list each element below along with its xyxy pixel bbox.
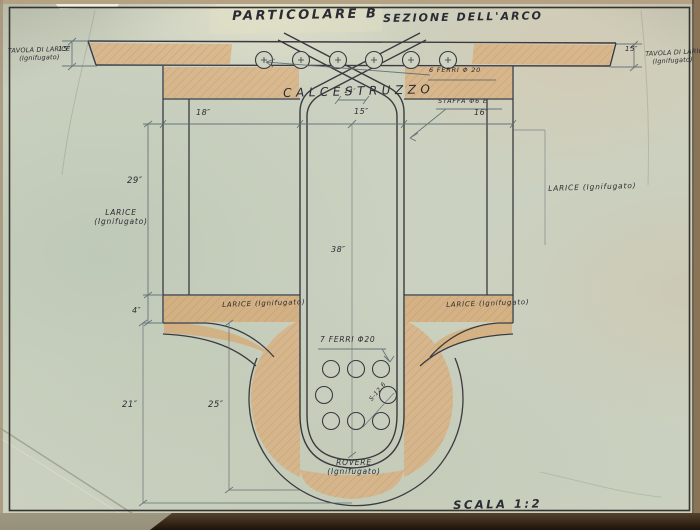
title-particolare: PARTICOLARE B — [232, 6, 379, 24]
label-larice-left: LARICE (Ignifugato) — [90, 208, 152, 226]
label-ferri-bottom: 7 FERRI Φ20 — [320, 335, 375, 344]
dim-block-inner: 25″ — [208, 400, 224, 410]
dim-block-left: 21″ — [122, 400, 138, 410]
drawing-canvas — [0, 0, 700, 530]
rebar-bottom — [316, 361, 397, 430]
dim-neck: 14″ — [344, 87, 356, 95]
label-ferri-top: 6 FERRI Φ 20 — [429, 66, 481, 74]
label-rovere-line2: (Ignifugato) — [318, 467, 390, 476]
scale-note: SCALA 1:2 — [453, 496, 542, 512]
label-rovere: ROVERE (Ignifugato) — [318, 458, 390, 476]
dimension-lines — [62, 38, 642, 506]
border-frame — [10, 8, 690, 511]
dim-row-center: 15″ — [354, 107, 369, 116]
dim-band-thickness: 4″ — [132, 306, 141, 315]
label-staffa: STAFFA Φ6 E — [438, 97, 488, 105]
dim-row-right: 16″ — [474, 108, 489, 117]
label-rovere-line1: ROVERE — [318, 458, 390, 467]
dim-slab-right: 15″ — [625, 45, 638, 53]
title-sezione: SEZIONE DELL'ARCO — [383, 9, 543, 25]
dim-row-left: 18″ — [196, 108, 211, 117]
dim-wall-height: 29″ — [127, 176, 143, 186]
technical-drawing-sheet: PARTICOLARE B SEZIONE DELL'ARCO TAVOLA D… — [0, 0, 700, 530]
dim-slab-left: 15″ — [58, 45, 71, 53]
label-larice-left-line2: (Ignifugato) — [90, 217, 152, 226]
label-tavola-larice-right: TAVOLA DI LARICE (Ignifugato) — [645, 47, 700, 66]
label-larice-left-line1: LARICE — [90, 208, 152, 217]
dim-stem-height: 38″ — [331, 245, 346, 254]
